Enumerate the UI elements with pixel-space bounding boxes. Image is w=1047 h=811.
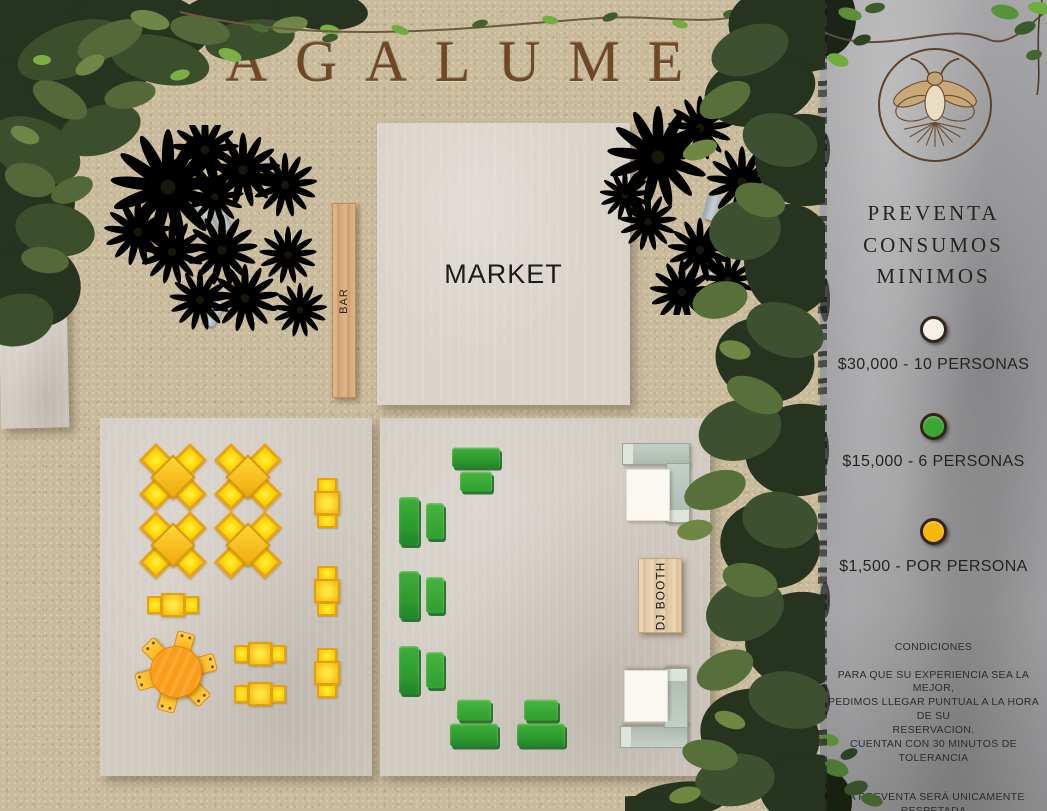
white-tier-label: $30,000 - 10 PERSONAS [838, 356, 1030, 374]
green-tier-dot [920, 413, 947, 440]
conditions-heading: CONDICIONES [820, 641, 1047, 655]
green-sofa-set-6pax[interactable] [452, 448, 500, 493]
white-tier-dot [920, 316, 947, 343]
chair-icon [234, 645, 249, 663]
table-top-icon [150, 646, 202, 698]
chair-icon [184, 596, 199, 614]
conditions-paragraph-2: LA PREVENTA SERÁ UNICAMENTE RESPETADA PA… [820, 791, 1047, 811]
table-2pax-yellow[interactable] [313, 478, 341, 528]
sofa-icon [399, 497, 419, 545]
round-table-6pax-orange[interactable] [136, 632, 216, 712]
white-l-couch-10pax[interactable] [620, 668, 688, 748]
green-sofa-set-6pax[interactable] [399, 497, 445, 545]
ottoman-icon [457, 700, 491, 721]
ottoman-icon [524, 700, 558, 721]
sofa-icon [517, 724, 565, 747]
table-4pax-yellow[interactable] [144, 448, 202, 506]
sofa-icon [399, 571, 419, 619]
table-top-icon [248, 682, 272, 706]
table-2pax-yellow[interactable] [234, 681, 286, 707]
table-2pax-yellow[interactable] [147, 592, 199, 618]
ottoman-icon [426, 652, 444, 688]
green-sofa-set-6pax[interactable] [399, 571, 445, 619]
couch-cushion-icon [624, 670, 668, 722]
preventa-heading: PREVENTA CONSUMOS MINIMOS [820, 198, 1047, 293]
green-sofa-set-6pax[interactable] [517, 700, 565, 747]
green-sofa-set-6pax[interactable] [399, 646, 445, 694]
vagalume-venue-map: VAGALUME MARKET BAR DJ BOOTH [0, 0, 1047, 811]
legend-tier-white: $30,000 - 10 PERSONAS [820, 316, 1047, 374]
green-sofa-set-6pax[interactable] [450, 700, 498, 747]
chair-icon [317, 514, 337, 528]
ottoman-icon [426, 577, 444, 613]
sofa-icon [452, 448, 500, 468]
table-top-icon [314, 491, 340, 515]
sofa-icon [399, 646, 419, 694]
table-2pax-yellow[interactable] [313, 566, 341, 616]
chair-icon [317, 602, 337, 616]
firefly-icon [878, 48, 992, 162]
table-4pax-yellow[interactable] [144, 516, 202, 574]
ottoman-icon [426, 503, 444, 539]
yellow-tier-label: $1,500 - POR PERSONA [839, 558, 1028, 576]
couch-cushion-icon [626, 469, 670, 521]
chair-icon [271, 685, 286, 703]
conditions-text: CONDICIONES PARA QUE SU EXPERIENCIA SEA … [820, 627, 1047, 811]
yellow-tier-dot [920, 518, 947, 545]
legend-tier-green: $15,000 - 6 PERSONAS [820, 413, 1047, 471]
table-4pax-yellow[interactable] [219, 448, 277, 506]
green-tier-label: $15,000 - 6 PERSONAS [842, 453, 1024, 471]
table-2pax-yellow[interactable] [234, 641, 286, 667]
table-top-icon [161, 593, 185, 617]
sofa-icon [450, 724, 498, 747]
table-top-icon [314, 661, 340, 685]
conditions-paragraph-1: PARA QUE SU EXPERIENCIA SEA LA MEJOR, PE… [820, 669, 1047, 766]
table-4pax-yellow[interactable] [219, 516, 277, 574]
info-sidebar: PREVENTA CONSUMOS MINIMOS $30,000 - 10 P… [820, 0, 1047, 811]
couch-arm-icon [620, 726, 688, 748]
chair-icon [271, 645, 286, 663]
chair-icon [147, 596, 162, 614]
table-top-icon [248, 642, 272, 666]
white-l-couch-10pax[interactable] [622, 443, 690, 523]
stone-edge [818, 0, 827, 811]
furniture-layer [0, 0, 822, 811]
table-top-icon [314, 579, 340, 603]
chair-icon [234, 685, 249, 703]
chair-icon [317, 684, 337, 698]
table-2pax-yellow[interactable] [313, 648, 341, 698]
couch-arm-icon [622, 443, 690, 465]
ottoman-icon [460, 472, 492, 492]
legend-tier-yellow: $1,500 - POR PERSONA [820, 518, 1047, 576]
map-area: VAGALUME MARKET BAR DJ BOOTH [0, 0, 822, 811]
